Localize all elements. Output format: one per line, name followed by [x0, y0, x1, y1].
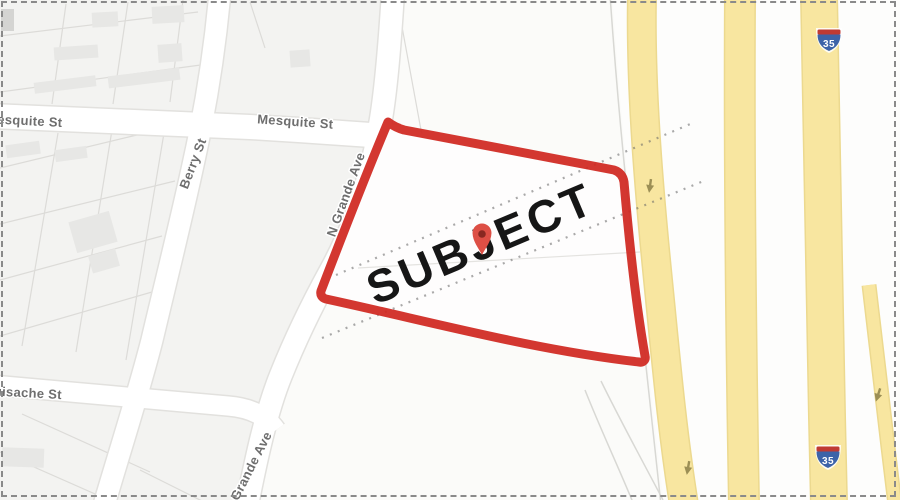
map: Mesquite St Mesquite St Berry St N Grand…: [0, 0, 900, 500]
shield-number: 35: [822, 456, 834, 467]
street-label-huisache: Huisache St: [0, 383, 63, 402]
street-label-mesquite-left: Mesquite St: [0, 111, 63, 130]
i35-lanes-east: [819, 0, 829, 500]
map-image[interactable]: Mesquite St Mesquite St Berry St N Grand…: [0, 0, 900, 500]
i35-lanes-middle: [740, 0, 744, 500]
shield-number: 35: [823, 39, 835, 50]
